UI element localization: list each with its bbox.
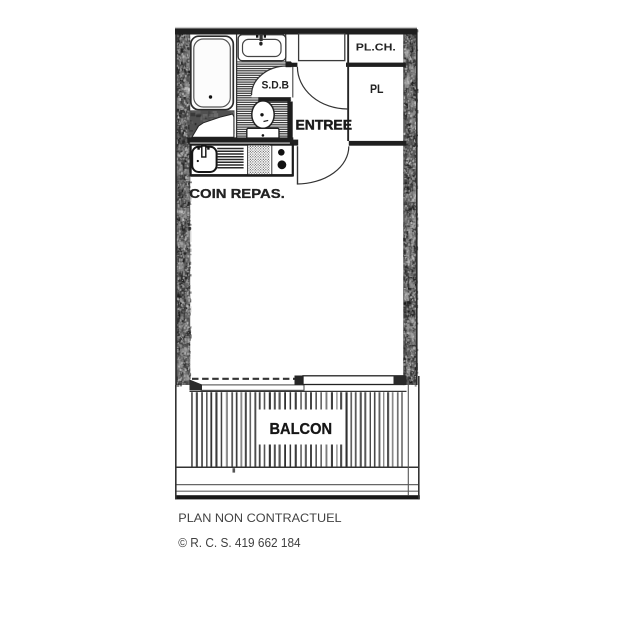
svg-text:S.D.B: S.D.B (262, 80, 290, 92)
svg-text:COIN REPAS.: COIN REPAS. (189, 186, 285, 201)
svg-text:BALCON: BALCON (270, 421, 333, 438)
svg-text:PLAN NON CONTRACTUEL: PLAN NON CONTRACTUEL (178, 511, 342, 525)
svg-text:ENTREE: ENTREE (296, 117, 353, 132)
svg-text:© R. C. S. 419 662 184: © R. C. S. 419 662 184 (178, 535, 300, 550)
svg-text:PL: PL (370, 84, 384, 96)
svg-text:PL.CH.: PL.CH. (356, 43, 396, 54)
